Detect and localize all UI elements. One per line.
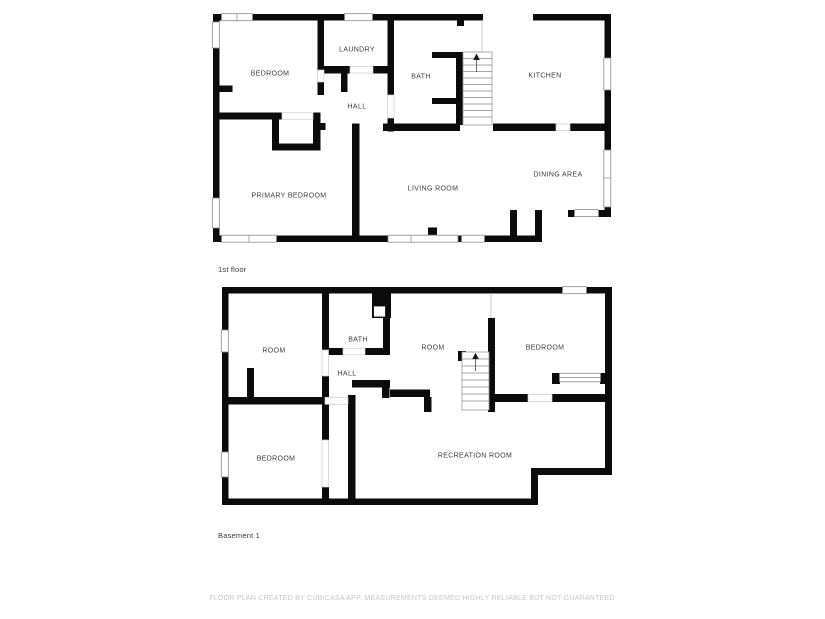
room-label-laundry: LAUNDRY [339,47,375,54]
room-label-dining-area: DINING AREA [534,172,583,179]
page-background [0,0,825,619]
first-floor-title: 1st floor [218,265,247,274]
room-label-room-2: ROOM [421,345,444,352]
room-label-bath: BATH [411,74,431,81]
floor-plan-document: BEDROOM LAUNDRY HALL BATH KITCHEN PRIMAR… [0,0,825,619]
room-label-bath-basement: BATH [348,337,368,344]
basement-staircase-icon [462,352,489,410]
room-label-bedroom: BEDROOM [251,71,290,78]
room-label-primary-bedroom: PRIMARY BEDROOM [251,193,326,200]
floor-plan-svg: BEDROOM LAUNDRY HALL BATH KITCHEN PRIMAR… [0,0,825,619]
room-label-hall-basement: HALL [338,371,357,378]
footer-disclaimer: FLOOR PLAN CREATED BY CUBICASA APP. MEAS… [209,595,615,602]
room-label-bedroom-right: BEDROOM [526,345,565,352]
room-label-bedroom-left: BEDROOM [257,456,296,463]
room-label-recreation-room: RECREATION ROOM [438,453,512,460]
room-label-room-1: ROOM [262,348,285,355]
basement-title: Basement 1 [218,531,260,540]
room-label-living-room: LIVING ROOM [408,186,459,193]
closet-door-icon [560,373,601,382]
room-label-kitchen: KITCHEN [528,73,561,80]
room-label-hall: HALL [348,104,367,111]
